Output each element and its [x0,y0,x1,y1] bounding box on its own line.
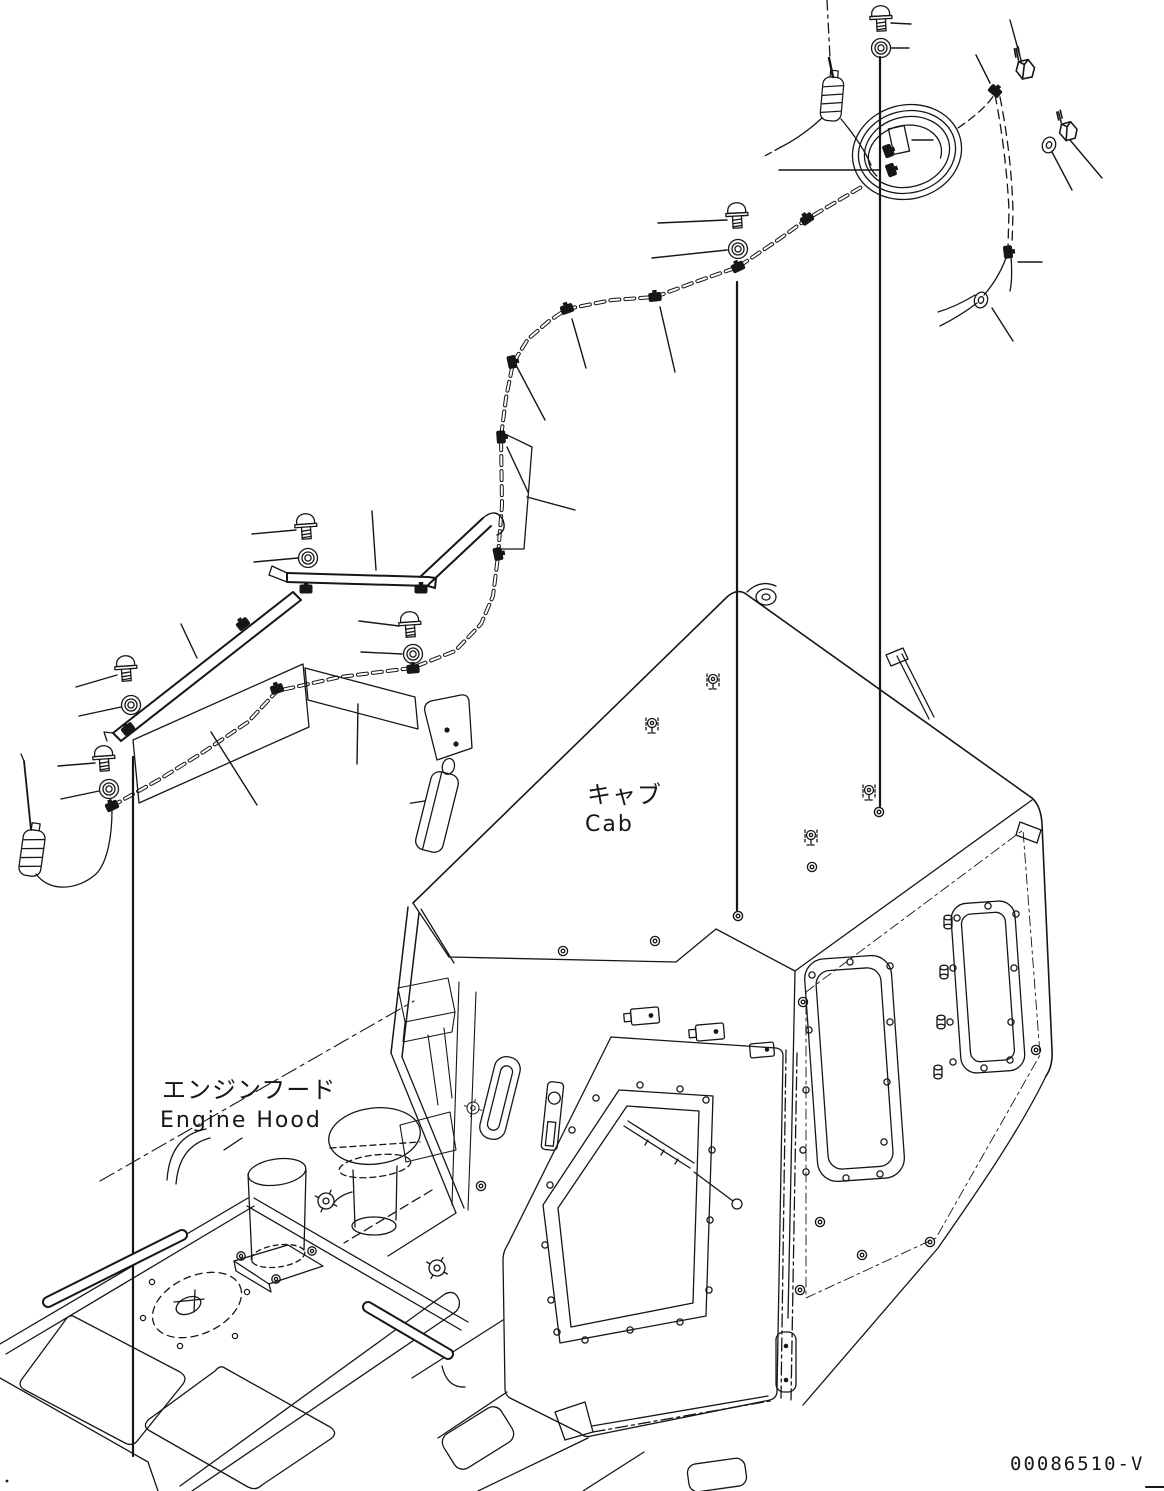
panel-inner-frame [806,830,1040,1298]
side-window-2-screws [947,903,1019,1071]
bolt-icon [92,745,116,772]
harness-clips [103,210,815,813]
roof-anchor [805,830,817,845]
roof-bolt [733,911,742,920]
cab-roof-edge [413,592,1032,903]
hood-edge-front [0,1378,158,1491]
antenna-rod [827,0,830,58]
fastener-hardware [92,5,1083,798]
mirror-bracket [400,752,464,854]
door-window-glass [558,1106,699,1327]
hood-panel-2 [145,1367,334,1489]
side-window-2 [950,900,1026,1074]
cable-clip [496,430,508,444]
cab-bottom-edge-right [803,1076,1046,1405]
cable-clip [648,289,662,302]
antenna-cable [36,810,112,887]
wing-bolt [462,1097,484,1119]
roof-bolt [874,807,883,816]
line-art: キャブ Cab エンジンフード Engine Hood 00086510-V [0,0,1164,1491]
cover-plate-1 [133,664,309,803]
cable-clip [882,142,897,158]
engine-hood-label-jp: エンジンフード [162,1076,336,1104]
side-window-1-screws [800,959,893,1181]
panel-front-edge [788,971,795,1318]
cab-roof-eave [413,903,795,971]
access-hole [140,1259,251,1350]
bracket-strip-hook [420,513,504,585]
roof-anchor [863,785,875,800]
bolt-icon [725,202,748,228]
roof-anchor [646,718,658,733]
left-antenna [18,754,112,887]
cover-plate-2 [305,668,418,729]
hood-bolt [476,1181,485,1190]
bracket-clip [234,614,251,631]
cab-label-jp: キャブ [587,781,662,809]
door-latch [541,1081,564,1150]
bolt-icon [869,5,892,31]
harness-branch-right [938,81,1016,326]
antenna-rod [24,761,31,830]
engine-hood [0,1001,486,1491]
leader-lines [58,20,1102,1456]
cable-clip [103,797,120,813]
washer-icon [404,645,423,664]
roof-bolt [558,946,567,955]
panel-screws [795,997,1040,1294]
grommet [972,290,989,309]
grommet [1040,135,1058,154]
antenna-cable [781,118,822,147]
hinge-pins [934,915,952,1079]
washer-icon [299,549,318,568]
roof-bolt [650,936,659,945]
cab [167,584,1052,1491]
cable-clip [885,161,900,177]
door-hinge-line [781,1050,797,1400]
grab-handle [477,1054,523,1142]
coiled-antenna-cable [842,93,971,211]
antenna-spring-base [820,70,845,122]
cable-clip [729,258,746,274]
washer-icon [100,780,119,799]
hex-bolt-icon [1003,46,1041,83]
cab-door [503,1037,783,1437]
corner-bracket [425,695,472,760]
exhaust-stack [246,1155,307,1271]
hood-edge-left [0,1198,254,1354]
exhaust-mount-plate [234,1245,323,1292]
a-pillar [391,907,419,1057]
cab-rear-pillar [1032,798,1052,1076]
hex-bolt-icon [1046,109,1083,144]
cab-interior [398,978,476,1210]
bracket-bar-upper [269,566,436,588]
parts-diagram-page: キャブ Cab エンジンフード Engine Hood 00086510-V [0,0,1164,1491]
wiper [624,1121,742,1209]
bracket-clip [300,582,313,594]
bolt-icon [398,611,422,638]
antenna-spring-base [18,822,47,878]
hood-edge-right [247,1198,468,1330]
bolt-icon [294,513,318,540]
washer-icon [872,39,891,58]
door-hinges [623,1007,774,1058]
hood-side-rail [180,1292,459,1491]
hood-panel-1 [20,1316,185,1445]
roof-anchor [707,674,719,689]
hinge-plate [776,1332,796,1392]
air-cleaner [310,1103,424,1235]
washer-icon [729,240,748,259]
cab-label-en: Cab [585,812,634,837]
drawing-number: 00086510-V [1010,1453,1144,1475]
wiring-harness [112,186,863,806]
text-labels: キャブ Cab エンジンフード Engine Hood 00086510-V [160,781,1144,1475]
roof-bolt [807,862,816,871]
wing-bolt [310,1185,342,1217]
bracket-strip-long [104,592,301,741]
side-window-1 [803,954,905,1183]
cable-clip [269,680,285,695]
wing-bolt [421,1252,454,1285]
washer-icon [122,696,141,715]
bolt-icon [114,655,138,682]
cable-clip [1003,245,1016,259]
mounting-brackets [104,434,532,803]
cable-clip [987,81,1004,98]
bracket-clip [415,582,428,594]
engine-hood-label-en: Engine Hood [160,1108,322,1133]
